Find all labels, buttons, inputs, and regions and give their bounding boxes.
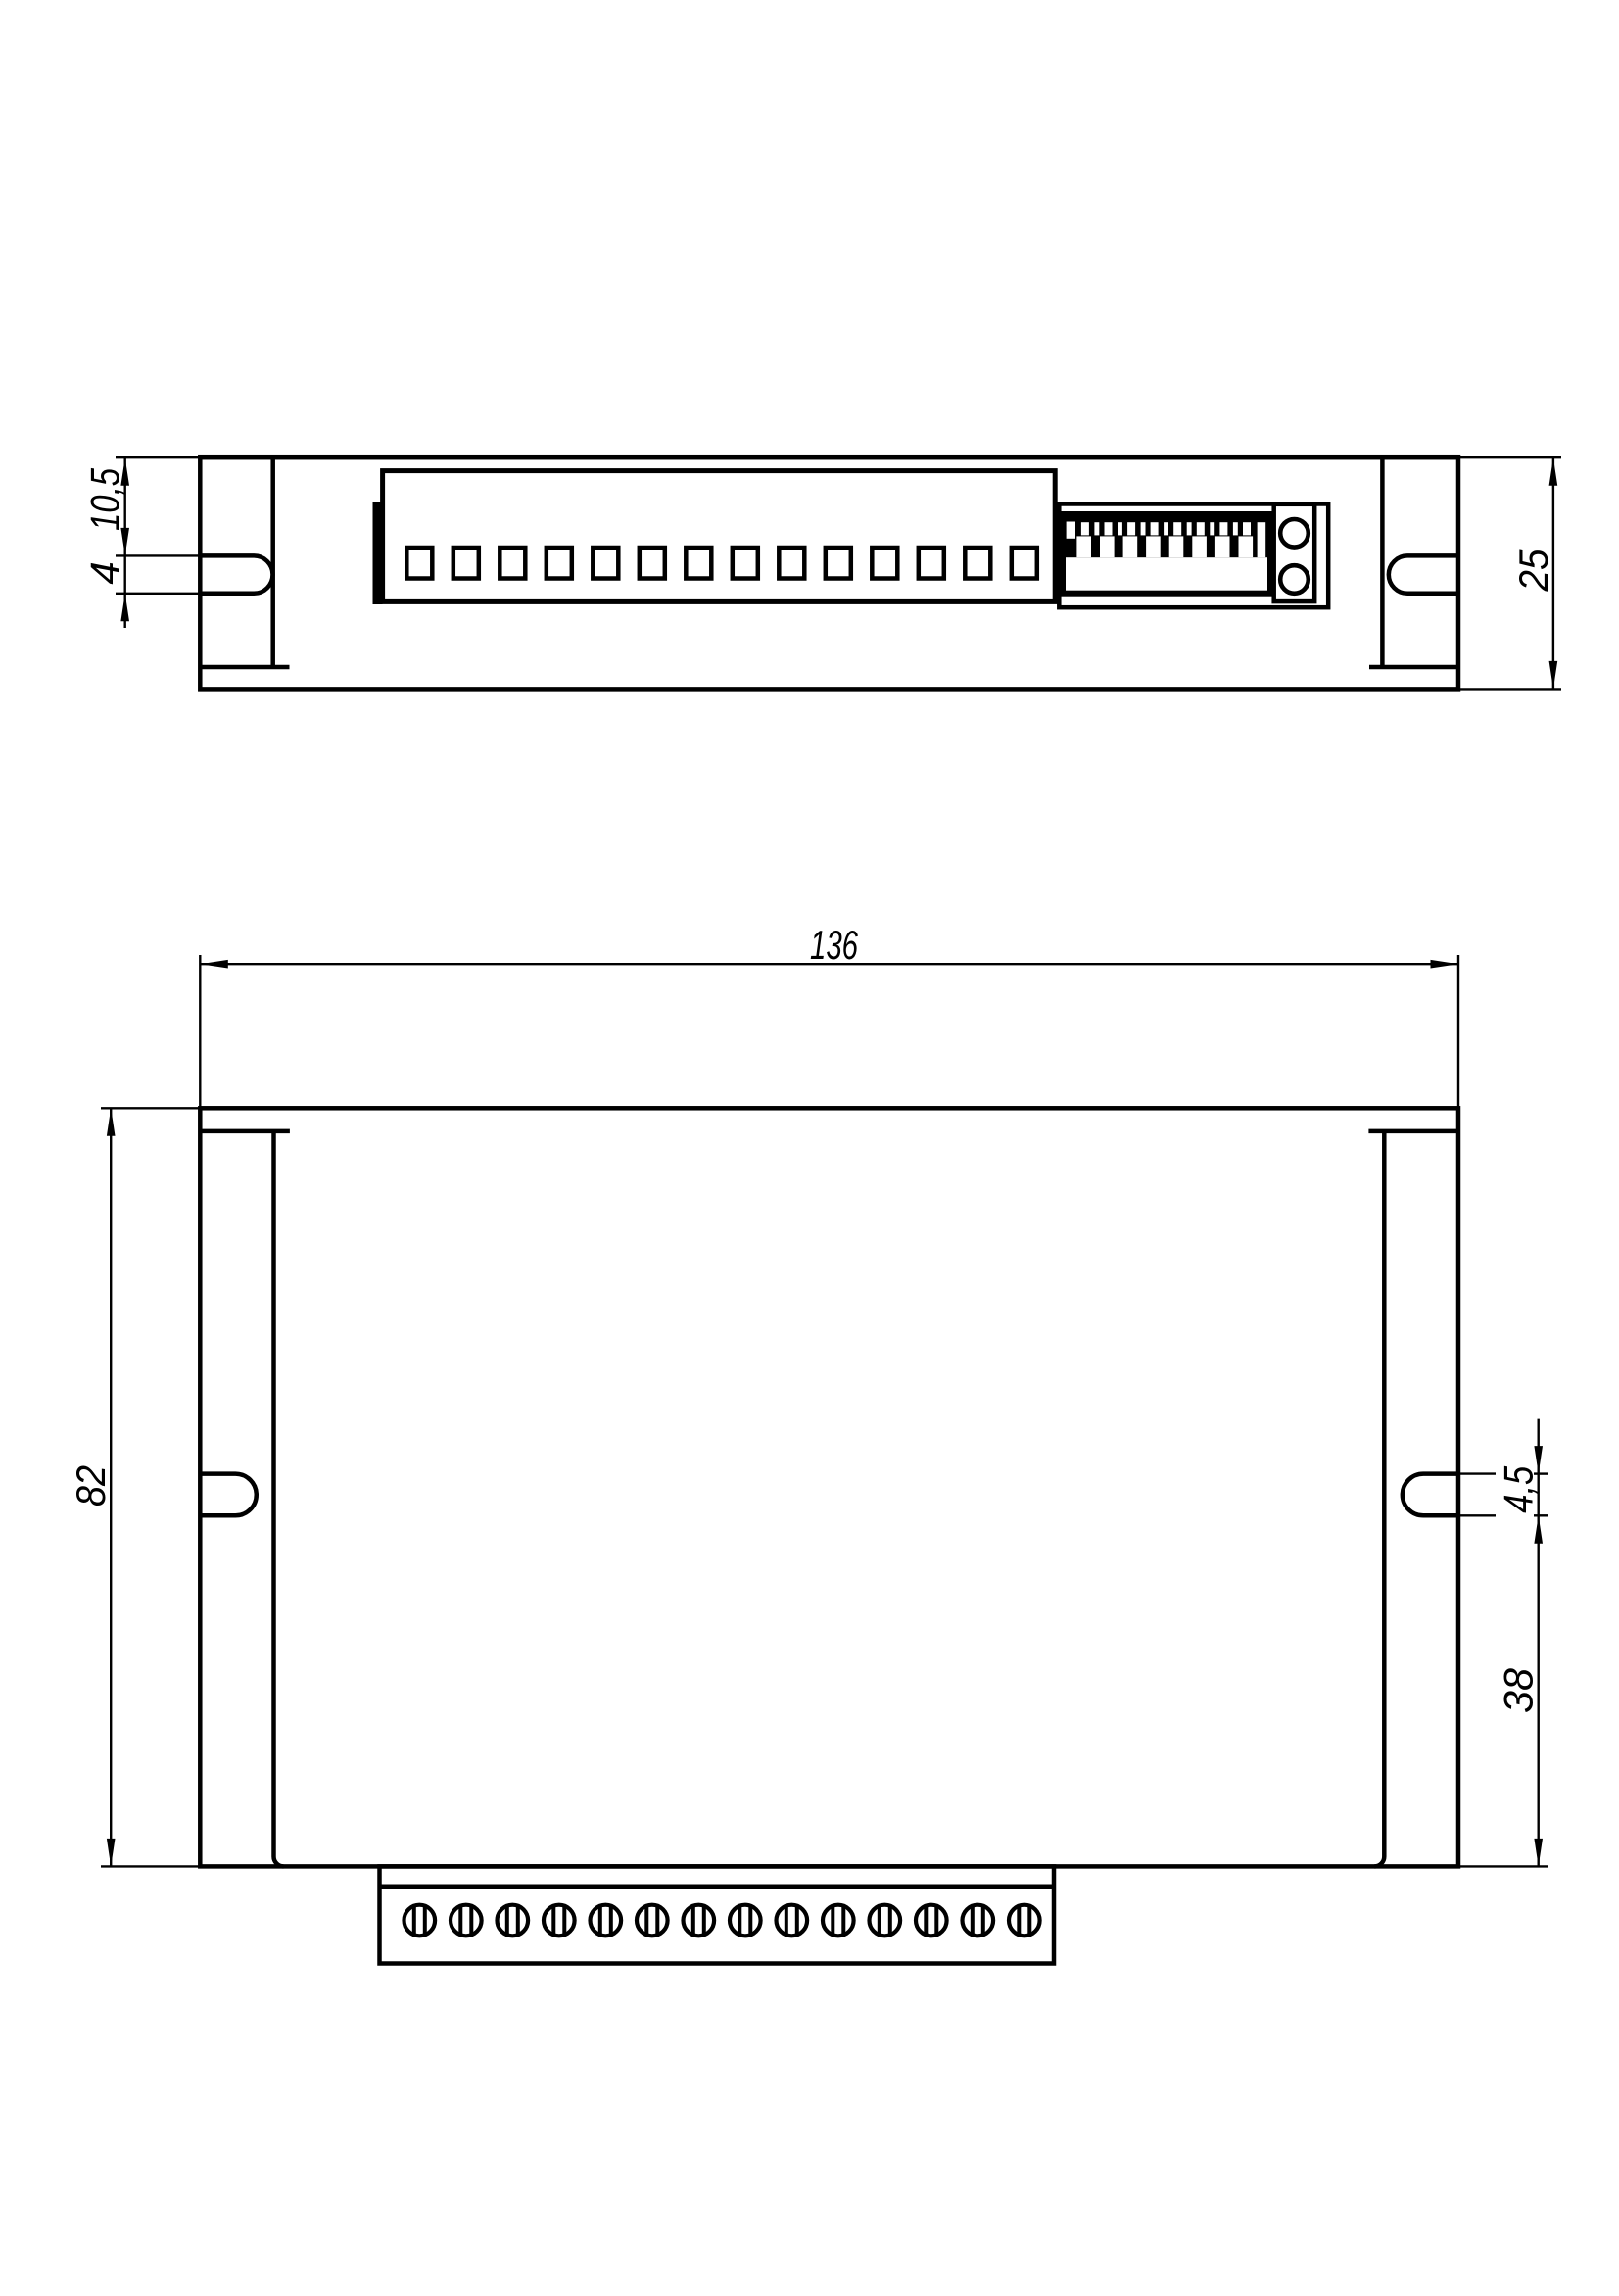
- svg-text:25: 25: [1510, 549, 1556, 593]
- svg-text:10,5: 10,5: [82, 468, 128, 531]
- svg-text:82: 82: [68, 1465, 114, 1507]
- svg-text:136: 136: [810, 922, 858, 968]
- svg-text:4: 4: [82, 561, 128, 584]
- svg-text:4,5: 4,5: [1496, 1465, 1542, 1513]
- svg-text:38: 38: [1496, 1667, 1542, 1713]
